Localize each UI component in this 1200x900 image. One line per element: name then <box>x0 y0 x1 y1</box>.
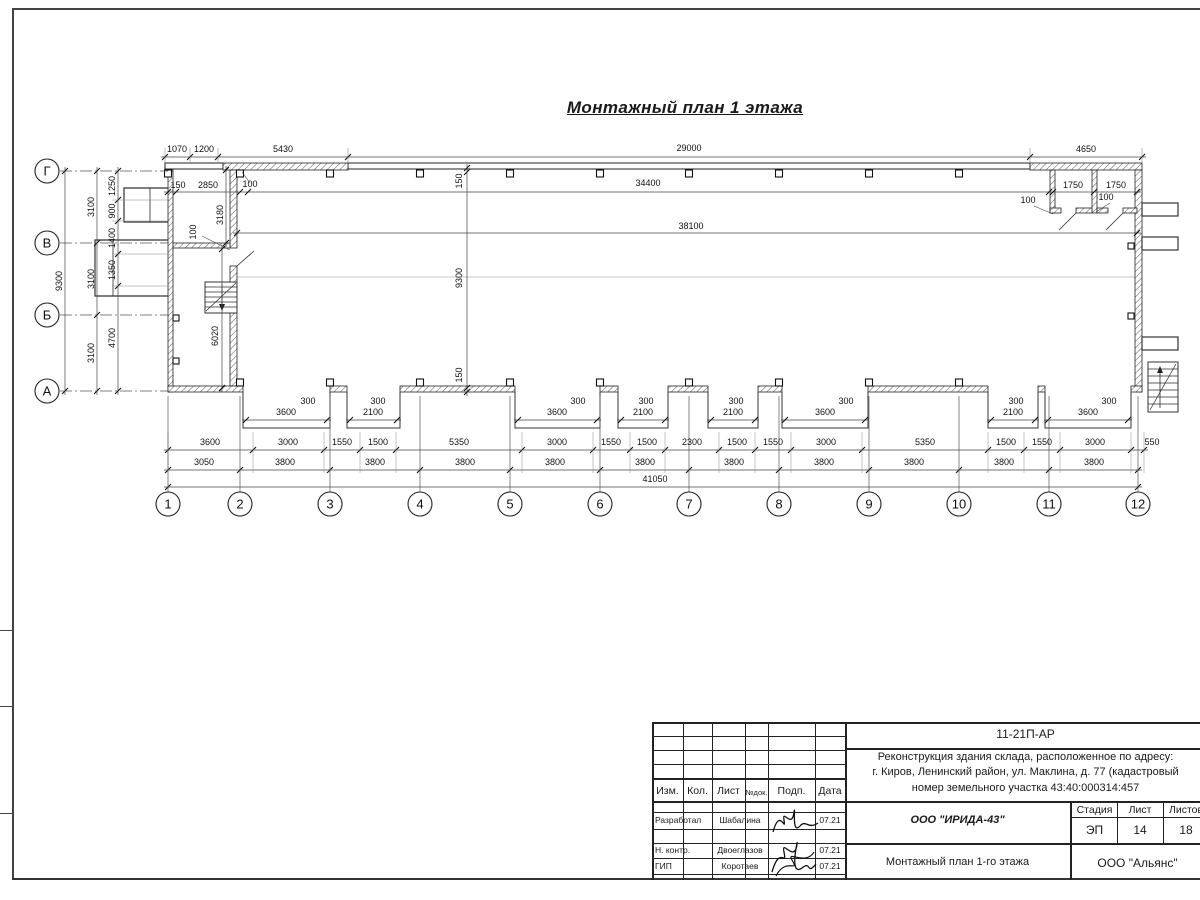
dim-label: 3800 <box>724 457 744 467</box>
axis-bubble-label: 1 <box>164 497 171 512</box>
stage-label: Стадия <box>1072 804 1117 816</box>
dim-label: 5350 <box>915 437 935 447</box>
col-data: Дата <box>815 785 845 797</box>
dim-label: 100 <box>1020 195 1035 205</box>
dim-label: 2850 <box>198 180 218 190</box>
sheets-total: 18 <box>1163 823 1200 837</box>
sheet-number: 14 <box>1117 823 1163 837</box>
dim-label: 550 <box>1144 437 1159 447</box>
dim-label: 300 <box>300 396 315 406</box>
dim-label: 3100 <box>86 197 96 217</box>
dim-label: 3800 <box>545 457 565 467</box>
dim-label: 3800 <box>455 457 475 467</box>
dim-label: 29000 <box>676 143 701 153</box>
dim-label: 3800 <box>365 457 385 467</box>
axis-bubble-label: 3 <box>326 497 333 512</box>
dim-label: 300 <box>728 396 743 406</box>
drawing-sheet: { "sheet": { "title": "Монтажный план 1 … <box>0 0 1200 900</box>
sheet-label: Лист <box>1117 804 1163 816</box>
col-podp: Подп. <box>768 785 815 797</box>
row-name-developer: Шабалина <box>712 815 768 825</box>
dim-label: 3100 <box>86 269 96 289</box>
dim-label: 100 <box>1098 192 1113 202</box>
company-name: ООО "Альянс" <box>1070 856 1200 870</box>
dim-label: 2100 <box>633 407 653 417</box>
axis-bubble-label: 5 <box>506 497 513 512</box>
extension-lines <box>112 148 1144 473</box>
axis-bubble-label: 6 <box>596 497 603 512</box>
dim-label: 3180 <box>215 205 225 225</box>
dim-label: 2100 <box>1003 407 1023 417</box>
axis-bubble-label: Г <box>43 164 50 179</box>
col-kol: Кол. <box>683 785 712 797</box>
dim-label: 150 <box>454 173 464 188</box>
stage-value: ЭП <box>1072 823 1117 837</box>
col-list: Лист <box>712 785 745 797</box>
axis-bubble-label: 2 <box>236 497 243 512</box>
org-name: ООО "ИРИДА-43" <box>846 814 1069 826</box>
axis-bubble-label: В <box>43 236 52 251</box>
dim-label: 4700 <box>107 328 117 348</box>
axis-bubble-label: 4 <box>416 497 423 512</box>
dim-label: 3800 <box>275 457 295 467</box>
dim-label: 300 <box>370 396 385 406</box>
stairs <box>205 282 1178 412</box>
dim-label: 3050 <box>194 457 214 467</box>
entrance-porches <box>95 188 1178 350</box>
dim-label: 4650 <box>1076 144 1096 154</box>
dim-label: 150 <box>170 180 185 190</box>
dim-label: 3000 <box>278 437 298 447</box>
row-name-ncontrol: Двоеглазов <box>712 845 768 855</box>
dim-label: 900 <box>107 203 117 218</box>
dim-label: 3000 <box>816 437 836 447</box>
dim-label: 1750 <box>1063 180 1083 190</box>
dim-label: 100 <box>188 224 198 239</box>
dim-label: 300 <box>570 396 585 406</box>
dim-label: 5350 <box>449 437 469 447</box>
dim-label: 3600 <box>547 407 567 417</box>
axis-bubble-label: 7 <box>685 497 692 512</box>
walls <box>165 163 1142 392</box>
axis-bubble-label: А <box>43 384 52 399</box>
dim-label: 3600 <box>200 437 220 447</box>
row-name-gip: Коротаев <box>712 861 768 871</box>
dim-label: 3800 <box>635 457 655 467</box>
dim-label: 1500 <box>368 437 388 447</box>
dim-label: 6020 <box>210 326 220 346</box>
dim-label: 3100 <box>86 343 96 363</box>
axis-bubble-label: 9 <box>865 497 872 512</box>
dim-label: 3600 <box>1078 407 1098 417</box>
dim-label: 1750 <box>1106 180 1126 190</box>
floor-plan: ГВБА123456789101112107012005430290004650… <box>0 0 1200 900</box>
axis-bubble-label: 8 <box>775 497 782 512</box>
dim-label: 300 <box>1101 396 1116 406</box>
dim-label: 1400 <box>107 228 117 248</box>
row-role-gip: ГИП <box>655 861 672 871</box>
dim-label: 2300 <box>682 437 702 447</box>
axis-bubble-label: 10 <box>952 497 966 512</box>
project-name-line3: номер земельного участка 43:40:000314:45… <box>846 782 1200 794</box>
axis-bubble-label: 11 <box>1042 497 1056 512</box>
dim-label: 5430 <box>273 144 293 154</box>
sheets-label: Листов <box>1163 804 1200 816</box>
dim-label: 1250 <box>107 176 117 196</box>
signature-ncontrol-gip <box>766 836 824 878</box>
dim-label: 38100 <box>678 221 703 231</box>
row-role-ncontrol: Н. контр. <box>655 845 690 855</box>
dim-label: 300 <box>638 396 653 406</box>
dim-label: 1500 <box>727 437 747 447</box>
dim-label: 1550 <box>1032 437 1052 447</box>
dim-label: 1200 <box>194 144 214 154</box>
dim-label: 2100 <box>723 407 743 417</box>
doc-number: 11-21П-АР <box>846 727 1200 741</box>
dim-label: 1350 <box>107 260 117 280</box>
signature-developer <box>770 802 825 838</box>
dim-label: 100 <box>242 179 257 189</box>
dim-label: 3000 <box>1085 437 1105 447</box>
dim-label: 300 <box>838 396 853 406</box>
dim-label: 3800 <box>994 457 1014 467</box>
project-name-line2: г. Киров, Ленинский район, ул. Маклина, … <box>846 766 1200 778</box>
columns <box>165 170 1135 386</box>
dim-label: 3600 <box>815 407 835 417</box>
dim-label: 1500 <box>996 437 1016 447</box>
drawing-name: Монтажный план 1-го этажа <box>846 856 1069 868</box>
col-ndok: №док. <box>745 788 768 797</box>
dim-label: 9300 <box>454 268 464 288</box>
dim-label: 1550 <box>332 437 352 447</box>
dim-label: 3800 <box>1084 457 1104 467</box>
dim-label: 3800 <box>814 457 834 467</box>
dim-label: 2100 <box>363 407 383 417</box>
axis-bubble-label: Б <box>43 308 52 323</box>
dim-label: 300 <box>1008 396 1023 406</box>
dim-label: 34400 <box>635 178 660 188</box>
dim-label: 1070 <box>167 144 187 154</box>
dim-label: 9300 <box>54 271 64 291</box>
axis-bubble-label: 12 <box>1131 497 1145 512</box>
dim-label: 1550 <box>763 437 783 447</box>
dim-label: 1500 <box>637 437 657 447</box>
dim-label: 150 <box>454 367 464 382</box>
dim-label: 3800 <box>904 457 924 467</box>
dim-label: 1550 <box>601 437 621 447</box>
dim-label: 41050 <box>642 474 667 484</box>
dim-label: 3000 <box>547 437 567 447</box>
project-name-line1: Реконструкция здания склада, расположенн… <box>846 751 1200 763</box>
row-role-developer: Разработал <box>655 815 701 825</box>
dim-label: 3600 <box>276 407 296 417</box>
col-izm: Изм. <box>652 785 683 797</box>
